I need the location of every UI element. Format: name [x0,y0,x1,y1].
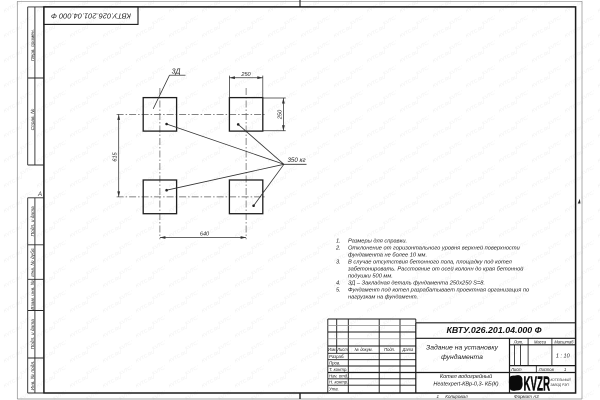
svg-text:забетонировать. Расстояние от: забетонировать. Расстояние от осей колон… [347,265,524,272]
svg-text:Формат А3: Формат А3 [514,394,539,399]
svg-text:2.: 2. [335,245,341,251]
svg-text:1 : 10: 1 : 10 [556,353,571,359]
svg-text:ЗД – Закладная деталь фундамен: ЗД – Закладная деталь фундамента 250х250… [348,280,485,286]
svg-text:КВТУ.026.201.04.000 Ф: КВТУ.026.201.04.000 Ф [447,326,543,335]
svg-text:фундамента: фундамента [441,353,483,361]
svg-text:подушки 500 мм.: подушки 500 мм. [348,273,393,279]
svg-text:В случае отсутствия бетонного: В случае отсутствия бетонного пола, площ… [348,259,513,265]
svg-text:Листов: Листов [538,367,555,372]
svg-text:ЗАВОД РЭП: ЗАВОД РЭП [550,383,569,387]
svg-text:Разраб.: Разраб. [329,354,345,359]
svg-text:А: А [37,192,42,198]
svg-text:3Д: 3Д [172,69,181,76]
svg-text:Дата: Дата [401,347,414,352]
svg-text:Взам. инв. №: Взам. инв. № [30,280,36,310]
svg-text:Отклонение от горизонтального: Отклонение от горизонтального уровня вер… [348,244,521,251]
svg-text:Справ. №: Справ. № [30,109,36,131]
svg-text:KVZR: KVZR [524,373,551,395]
svg-text:Т. контр.: Т. контр. [329,367,348,372]
svg-text:Масса: Масса [534,339,547,344]
svg-text:Подп.: Подп. [384,347,395,352]
svg-text:Лит.: Лит. [513,339,524,344]
svg-text:№ докум.: № докум. [355,347,373,352]
svg-text:Heatexpert-КВр-0,3- КБ(К): Heatexpert-КВр-0,3- КБ(К) [433,382,498,388]
svg-text:615: 615 [113,151,119,161]
svg-text:1.: 1. [336,238,341,244]
svg-text:Утв.: Утв. [329,387,339,392]
svg-text:Инв. № дубл.: Инв. № дубл. [30,247,36,277]
svg-text:Пров.: Пров. [329,361,340,366]
svg-text:Размеры для справки.: Размеры для справки. [348,238,407,244]
svg-text:3.: 3. [336,259,341,265]
svg-text:640: 640 [200,232,210,238]
svg-text:Н. контр.: Н. контр. [329,380,348,385]
svg-text:Подп. и дата: Подп. и дата [30,319,36,349]
svg-text:Котел водогрейный: Котел водогрейный [440,373,492,380]
svg-text:Подп. и дата: Подп. и дата [30,206,36,236]
svg-text:Копировал: Копировал [445,394,468,399]
svg-text:Нач. отд.: Нач. отд. [329,373,348,378]
svg-text:КВТУ.026.201.04.000 Ф: КВТУ.026.201.04.000 Ф [51,12,131,21]
svg-text:Задание на установку: Задание на установку [426,344,499,352]
svg-text:нагрузкам на фундамент.: нагрузкам на фундамент. [348,294,418,300]
svg-text:4.: 4. [336,280,341,286]
svg-text:350 кг: 350 кг [287,157,305,164]
svg-text:Изм.: Изм. [328,347,337,352]
svg-text:5.: 5. [336,287,341,293]
svg-text:Перв. примен.: Перв. примен. [30,29,36,61]
svg-text:250: 250 [240,72,251,78]
svg-text:250: 250 [277,109,283,120]
svg-text:фундамента не более 10 мм.: фундамента не более 10 мм. [348,252,427,258]
svg-text:1: 1 [564,367,566,372]
svg-text:Лист: Лист [510,367,522,372]
svg-text:Лист: Лист [336,347,348,352]
svg-text:Масштаб: Масштаб [554,339,574,344]
svg-text:Фундамент под котел разрабатыв: Фундамент под котел разрабатывает проект… [348,287,529,293]
svg-text:Инв. № подл.: Инв. № подл. [30,361,36,391]
svg-text:КОТЕЛЬНЫЙ: КОТЕЛЬНЫЙ [550,378,571,382]
